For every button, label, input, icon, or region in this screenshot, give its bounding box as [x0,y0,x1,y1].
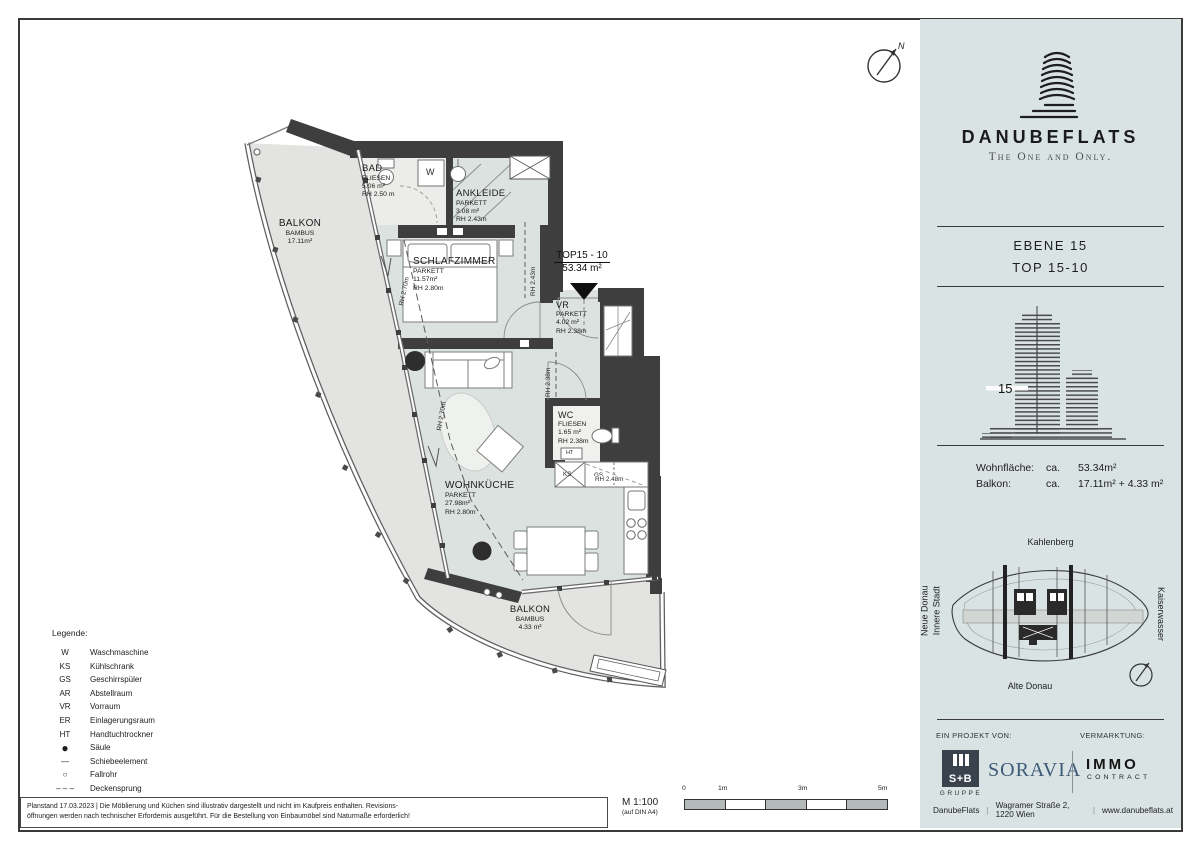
downpipe-icon: ○ [52,770,78,779]
sb-logo-bar [965,754,969,766]
divider [937,719,1164,720]
map-label-north: Kahlenberg [920,537,1181,547]
immo-contract-sub: CONTRACT [1087,774,1150,781]
map-label-west: Neue Donau Innere Stadt [919,556,942,666]
legend-item: ARAbstellraum [52,689,155,698]
scale-bar-graphic [684,799,888,810]
danubeflats-logo-icon [1005,47,1097,125]
room-label-wohnkueche: WOHNKÜCHE PARKETT 27.98m² RH 2.80m [445,480,514,517]
map-label-east: Kaiserwasser [1156,559,1166,669]
column-icon: ● [52,744,78,752]
unit-level: EBENE 15 [920,238,1181,253]
scale-bar: M 1:100 (auf DIN A4) 0 1m 3m 5m [618,792,908,824]
room-label-vr: VR PARKETT 4.02 m² RH 2.38m [556,300,587,336]
project-by-label: EIN PROJEKT VON: [936,731,1012,740]
area-row-wohnflaeche: Wohnfläche: ca. 53.34m² [976,462,1176,474]
north-label: N [898,41,905,51]
sb-logo-bar [953,754,957,766]
legend-item: ○Fallrohr [52,770,155,779]
scale-tick: 3m [798,785,807,792]
divider [937,445,1164,446]
sliding-element-icon: — [52,757,78,766]
scale-tick: 1m [718,785,727,792]
shaft-box [510,156,550,179]
legend-item: – – –Deckensprung [52,784,155,793]
legend-item: —Schiebeelement [52,757,155,766]
room-label-schlafzimmer: SCHLAFZIMMER PARKETT 11.57m² RH 2.80m [413,256,496,293]
scale-sub-label: (auf DIN A4) [622,809,658,816]
soravia-logo: SORAVIA [988,759,1081,782]
couch [425,352,512,388]
fixture-label-ks: KS [563,471,571,478]
marketing-label: VERMARKTUNG: [1080,731,1145,740]
legend: Legende: WWaschmaschine KSKühlschrank GS… [52,628,155,798]
legend-item: KSKühlschrank [52,662,155,671]
sidebar-panel: DANUBEFLATS The One and Only. EBENE 15 T… [920,19,1181,828]
unit-callout: TOP15 - 10 53.34 m² [544,250,620,274]
legend-title: Legende: [52,628,155,638]
dim-rh248: RH 2.48m [594,476,624,483]
column [405,351,425,371]
brand-name: DANUBEFLATS [920,127,1181,148]
fixture-label-ht: HT [566,450,573,456]
legend-item: WWaschmaschine [52,648,155,657]
sidebar-footer: DanubeFlats | Wagramer Straße 2, 1220 Wi… [933,801,1173,819]
fixture-label-w: W [426,167,435,177]
immo-contract-logo: IMMO [1086,756,1139,773]
sb-gruppe-logo: S+B [942,750,979,787]
room-label-bad: BAD FLIESEN 5.06 m² RH 2.50 m [362,163,394,199]
footer-address: Wagramer Straße 2, 1220 Wien [996,801,1086,819]
vr-wardrobe [604,306,632,356]
legend-item: GSGeschirrspüler [52,675,155,684]
floor-marker: 15 [998,381,1012,396]
scale-tick: 0 [682,785,686,792]
dim-rh243: RH 2.43m [530,267,537,296]
unit-top: TOP 15-10 [920,260,1181,275]
partner-divider [1072,751,1073,793]
room-label-ankleide: ANKLEIDE PARKETT 3.08 m² RH 2.43m [456,188,505,224]
building-elevation [978,302,1128,447]
site-key-plan [945,553,1160,688]
footer-brand: DanubeFlats [933,806,979,815]
legend-item: VRVorraum [52,702,155,711]
sb-gruppe-sub: GRUPPE [938,790,984,797]
area-row-balkon: Balkon: ca. 17.11m² + 4.33 m² [976,478,1176,490]
legend-item: EREinlagerungsraum [52,716,155,725]
room-label-balkon-bottom: BALKON BAMBUS 4.33 m² [500,604,560,632]
room-label-balkon-left: BALKON BAMBUS 17.11m² [262,218,338,247]
dim-rh238: RH 2.38m [545,368,552,397]
scale-label: M 1:100 [622,797,658,808]
sb-logo-bar [959,754,963,766]
ceiling-step-icon: – – – [52,784,78,793]
legend-item: HTHandtuchtrockner [52,730,155,739]
footer-website[interactable]: www.danubeflats.at [1102,806,1173,815]
scale-tick: 5m [878,785,887,792]
plan-footnote: Planstand 17.03.2023 | Die Möblierung un… [20,797,608,828]
kitchen-sink [628,491,645,510]
divider [937,286,1164,287]
brand-tagline: The One and Only. [920,151,1181,163]
map-label-south: Alte Donau [920,681,1140,691]
divider [937,226,1164,227]
room-label-wc: WC FLIESEN 1.65 m² RH 2.38m [558,410,589,446]
north-compass-icon [868,49,900,82]
dining-table [514,527,598,575]
plan-sheet-page: N BALKON BAMBUS 17.11m² BAD FLIESEN 5.06… [0,0,1200,848]
legend-item: ●Säule [52,743,155,752]
column [473,542,492,561]
